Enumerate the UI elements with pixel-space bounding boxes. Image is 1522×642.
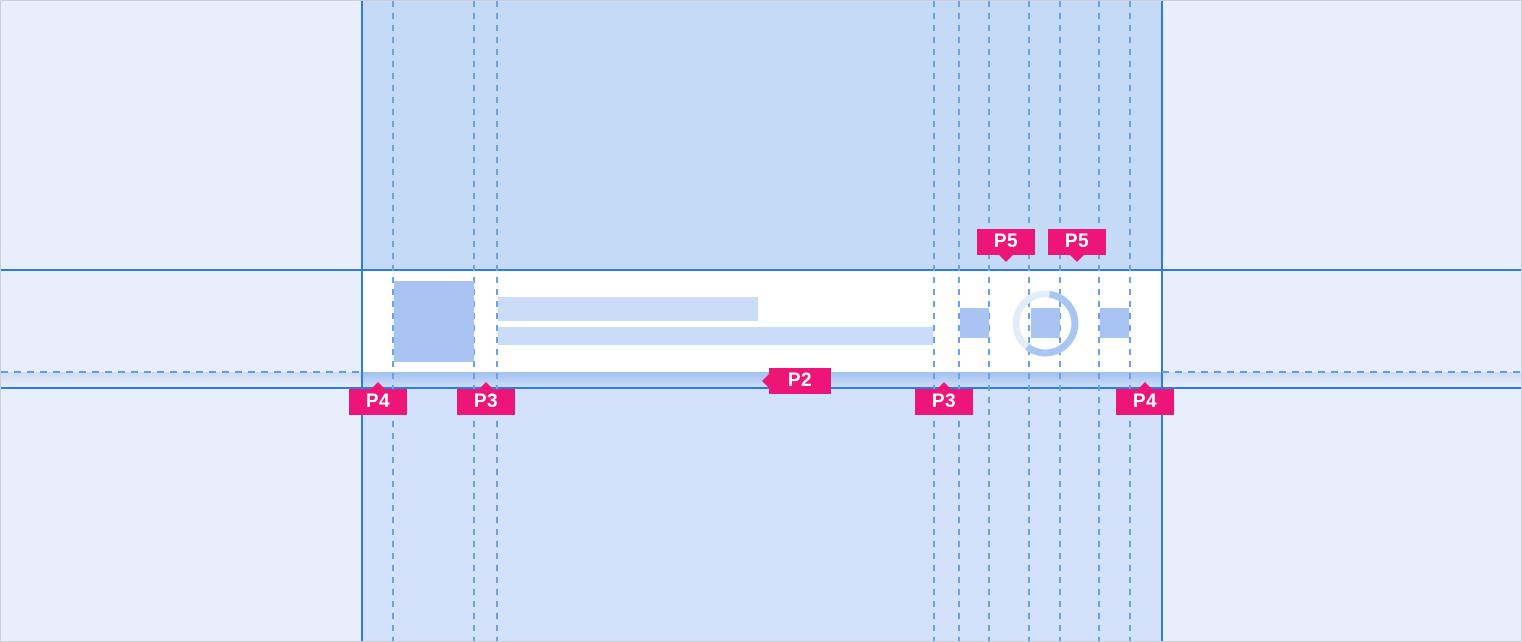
guide-dashed-action3-right [1129,1,1131,642]
component-column-band-bottom [362,388,1162,642]
spacing-label-p5-left: P5 [977,229,1035,255]
component-column-band-top [362,1,1162,270]
action-icon-placeholder-3 [1100,308,1129,338]
bottom-spacing-strip-right [1162,372,1522,388]
guide-line-row-top [1,269,1522,271]
action-icon-placeholder-2 [1031,308,1060,338]
spacing-label-p2: P2 [769,368,831,394]
guide-dashed-text-left [496,1,498,642]
guide-dashed-text-right [933,1,935,642]
spacing-label-p3-right: P3 [915,389,973,415]
bottom-spacing-strip-left [1,372,362,388]
guide-line-column-right [1161,1,1163,642]
action-icon-placeholder-1 [960,308,989,338]
spacing-label-p4-left: P4 [349,389,407,415]
guide-dashed-card-bottom-right [1162,371,1522,373]
spacing-redline-spec: P5 P5 P2 P4 P3 P3 P4 [0,0,1522,642]
spacing-label-p3-left: P3 [457,389,515,415]
spacing-label-p4-right: P4 [1116,389,1174,415]
avatar-placeholder [394,281,474,362]
spacing-label-p5-right: P5 [1048,229,1106,255]
title-text-placeholder [498,297,758,321]
subtitle-text-placeholder [498,327,933,345]
guide-dashed-card-bottom-left [1,371,362,373]
guide-line-column-left [361,1,363,642]
